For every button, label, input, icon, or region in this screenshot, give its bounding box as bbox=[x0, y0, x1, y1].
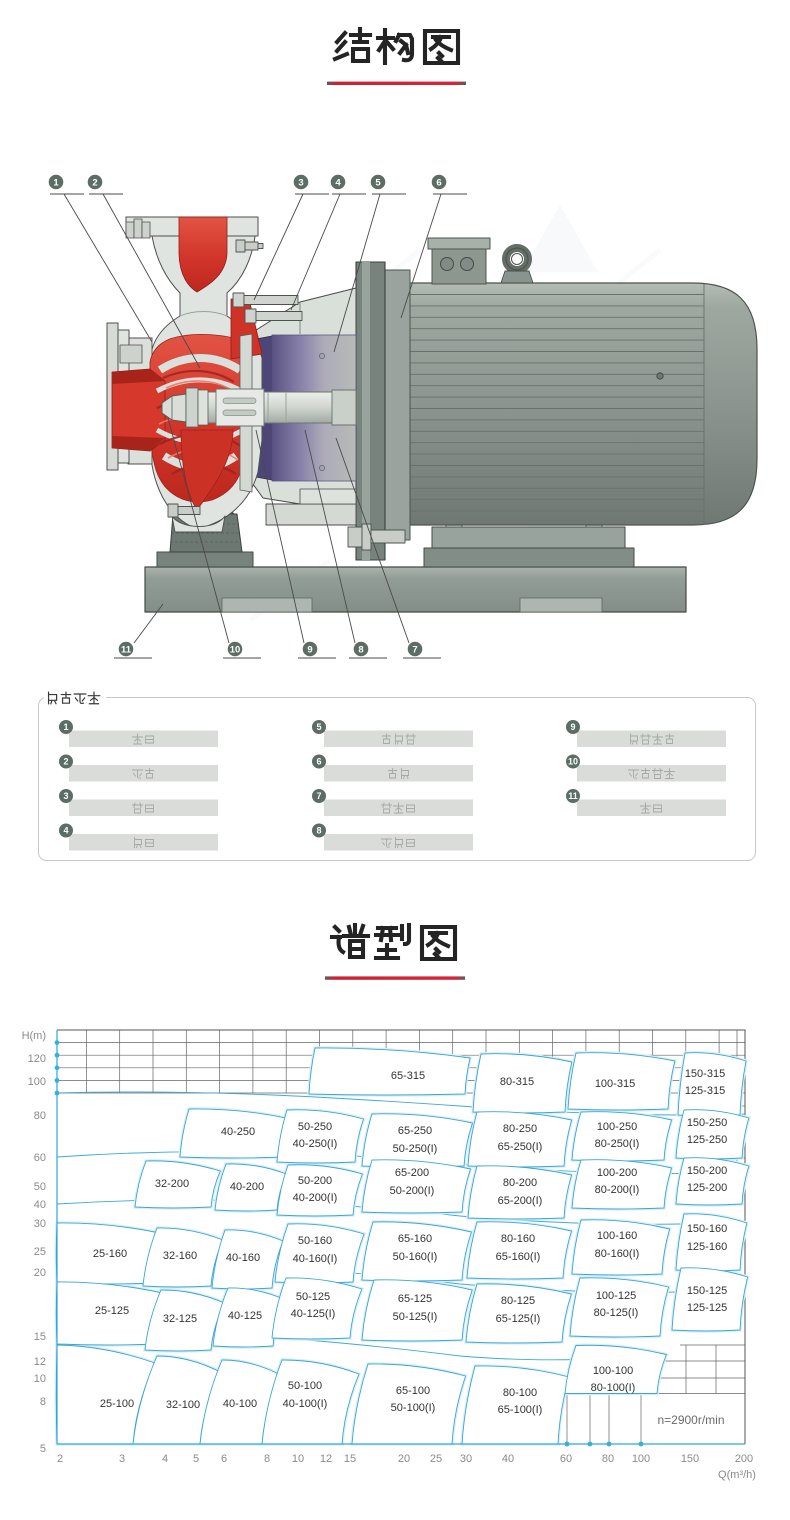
svg-text:150-315: 150-315 bbox=[685, 1068, 725, 1080]
svg-text:125-315: 125-315 bbox=[685, 1085, 725, 1097]
svg-text:80-125(I): 80-125(I) bbox=[594, 1307, 639, 1319]
svg-text:125-250: 125-250 bbox=[687, 1134, 727, 1146]
svg-text:65-200(I): 65-200(I) bbox=[498, 1195, 543, 1207]
svg-text:80-125: 80-125 bbox=[501, 1295, 535, 1307]
svg-text:40: 40 bbox=[502, 1453, 514, 1465]
svg-text:40-125(I): 40-125(I) bbox=[291, 1308, 336, 1320]
svg-text:8: 8 bbox=[316, 826, 321, 836]
svg-text:12: 12 bbox=[34, 1356, 46, 1368]
svg-text:7: 7 bbox=[316, 791, 321, 801]
svg-text:8: 8 bbox=[264, 1453, 270, 1465]
svg-text:60: 60 bbox=[34, 1152, 46, 1164]
svg-text:2: 2 bbox=[57, 1453, 63, 1465]
svg-text:40-125: 40-125 bbox=[228, 1310, 262, 1322]
svg-text:65-125(I): 65-125(I) bbox=[496, 1313, 541, 1325]
svg-text:3: 3 bbox=[298, 177, 303, 188]
svg-text:80-250: 80-250 bbox=[503, 1123, 537, 1135]
svg-text:5: 5 bbox=[316, 722, 321, 732]
svg-text:100-100: 100-100 bbox=[593, 1365, 633, 1377]
svg-text:40-250(I): 40-250(I) bbox=[293, 1138, 338, 1150]
svg-text:150-200: 150-200 bbox=[687, 1165, 727, 1177]
svg-text:6: 6 bbox=[221, 1453, 227, 1465]
svg-text:100-315: 100-315 bbox=[595, 1078, 635, 1090]
svg-text:25: 25 bbox=[34, 1246, 46, 1258]
svg-text:65-160(I): 65-160(I) bbox=[496, 1251, 541, 1263]
svg-text:200: 200 bbox=[735, 1453, 753, 1465]
svg-text:65-200: 65-200 bbox=[395, 1167, 429, 1179]
svg-text:50-160: 50-160 bbox=[298, 1235, 332, 1247]
svg-text:65-315: 65-315 bbox=[391, 1070, 425, 1082]
svg-text:40-160: 40-160 bbox=[226, 1252, 260, 1264]
svg-text:80-100(I): 80-100(I) bbox=[591, 1382, 636, 1394]
svg-text:50-125: 50-125 bbox=[296, 1291, 330, 1303]
svg-text:50: 50 bbox=[34, 1181, 46, 1193]
svg-text:50-100(I): 50-100(I) bbox=[391, 1402, 436, 1414]
svg-text:65-100: 65-100 bbox=[396, 1385, 430, 1397]
svg-text:50-250(I): 50-250(I) bbox=[393, 1143, 438, 1155]
svg-text:n=2900r/min: n=2900r/min bbox=[657, 1413, 724, 1427]
svg-text:9: 9 bbox=[307, 644, 312, 655]
svg-text:80-160: 80-160 bbox=[501, 1233, 535, 1245]
svg-text:80-200: 80-200 bbox=[503, 1177, 537, 1189]
svg-text:6: 6 bbox=[436, 177, 441, 188]
svg-text:4: 4 bbox=[162, 1453, 168, 1465]
svg-text:1: 1 bbox=[63, 722, 68, 732]
svg-text:50-250: 50-250 bbox=[298, 1121, 332, 1133]
svg-text:125-160: 125-160 bbox=[687, 1241, 727, 1253]
svg-text:65-100(I): 65-100(I) bbox=[498, 1404, 543, 1416]
svg-text:25-160: 25-160 bbox=[93, 1248, 127, 1260]
svg-text:65-160: 65-160 bbox=[398, 1233, 432, 1245]
svg-text:10: 10 bbox=[292, 1453, 304, 1465]
svg-text:8: 8 bbox=[358, 644, 363, 655]
svg-text:40-200(I): 40-200(I) bbox=[293, 1192, 338, 1204]
svg-text:32-160: 32-160 bbox=[163, 1250, 197, 1262]
svg-text:3: 3 bbox=[63, 791, 68, 801]
svg-text:15: 15 bbox=[344, 1453, 356, 1465]
svg-text:20: 20 bbox=[398, 1453, 410, 1465]
svg-text:60: 60 bbox=[560, 1453, 572, 1465]
svg-text:5: 5 bbox=[375, 177, 381, 188]
svg-text:9: 9 bbox=[570, 722, 575, 732]
svg-text:3: 3 bbox=[119, 1453, 125, 1465]
svg-text:80-315: 80-315 bbox=[500, 1076, 534, 1088]
svg-text:120: 120 bbox=[28, 1053, 46, 1065]
svg-text:10: 10 bbox=[34, 1373, 46, 1385]
svg-text:80-200(I): 80-200(I) bbox=[595, 1184, 640, 1196]
svg-text:30: 30 bbox=[34, 1218, 46, 1230]
svg-text:50-200(I): 50-200(I) bbox=[390, 1185, 435, 1197]
svg-text:100-200: 100-200 bbox=[597, 1167, 637, 1179]
svg-text:100-160: 100-160 bbox=[597, 1230, 637, 1242]
svg-text:25-125: 25-125 bbox=[95, 1305, 129, 1317]
svg-text:1: 1 bbox=[53, 177, 59, 188]
svg-text:2: 2 bbox=[63, 757, 68, 767]
svg-text:80-250(I): 80-250(I) bbox=[595, 1138, 640, 1150]
svg-text:50-100: 50-100 bbox=[288, 1380, 322, 1392]
svg-text:80: 80 bbox=[602, 1453, 614, 1465]
svg-text:Q(m³/h): Q(m³/h) bbox=[718, 1469, 756, 1481]
svg-text:40-100(I): 40-100(I) bbox=[283, 1398, 328, 1410]
svg-text:50-125(I): 50-125(I) bbox=[393, 1311, 438, 1323]
svg-text:4: 4 bbox=[335, 177, 341, 188]
svg-text:100-250: 100-250 bbox=[597, 1121, 637, 1133]
svg-text:8: 8 bbox=[40, 1396, 46, 1408]
svg-text:30: 30 bbox=[460, 1453, 472, 1465]
svg-text:H(m): H(m) bbox=[22, 1030, 46, 1042]
svg-text:15: 15 bbox=[34, 1331, 46, 1343]
svg-text:10: 10 bbox=[568, 757, 578, 767]
svg-text:65-125: 65-125 bbox=[398, 1293, 432, 1305]
svg-text:32-200: 32-200 bbox=[155, 1178, 189, 1190]
svg-text:11: 11 bbox=[568, 791, 578, 801]
svg-text:5: 5 bbox=[193, 1453, 199, 1465]
svg-text:40-200: 40-200 bbox=[230, 1181, 264, 1193]
svg-text:150-250: 150-250 bbox=[687, 1117, 727, 1129]
svg-text:32-100: 32-100 bbox=[166, 1399, 200, 1411]
svg-text:6: 6 bbox=[316, 757, 321, 767]
svg-text:7: 7 bbox=[412, 644, 417, 655]
svg-text:11: 11 bbox=[121, 644, 132, 655]
svg-text:65-250: 65-250 bbox=[398, 1125, 432, 1137]
svg-text:100: 100 bbox=[28, 1076, 46, 1088]
svg-text:80: 80 bbox=[34, 1110, 46, 1122]
svg-text:20: 20 bbox=[34, 1267, 46, 1279]
svg-text:32-125: 32-125 bbox=[163, 1313, 197, 1325]
svg-text:40-250: 40-250 bbox=[221, 1126, 255, 1138]
svg-text:5: 5 bbox=[40, 1443, 46, 1455]
svg-text:50-200: 50-200 bbox=[298, 1175, 332, 1187]
svg-text:10: 10 bbox=[230, 644, 241, 655]
svg-text:4: 4 bbox=[63, 826, 68, 836]
svg-text:40-100: 40-100 bbox=[223, 1398, 257, 1410]
svg-text:80-160(I): 80-160(I) bbox=[595, 1248, 640, 1260]
svg-text:25-100: 25-100 bbox=[100, 1398, 134, 1410]
svg-text:80-100: 80-100 bbox=[503, 1387, 537, 1399]
svg-text:150-125: 150-125 bbox=[687, 1285, 727, 1297]
svg-text:50-160(I): 50-160(I) bbox=[393, 1251, 438, 1263]
svg-text:125-125: 125-125 bbox=[687, 1302, 727, 1314]
svg-text:100: 100 bbox=[632, 1453, 650, 1465]
svg-text:25: 25 bbox=[430, 1453, 442, 1465]
svg-text:150-160: 150-160 bbox=[687, 1223, 727, 1235]
svg-text:40: 40 bbox=[34, 1199, 46, 1211]
svg-text:100-125: 100-125 bbox=[596, 1290, 636, 1302]
svg-text:125-200: 125-200 bbox=[687, 1182, 727, 1194]
svg-text:65-250(I): 65-250(I) bbox=[498, 1141, 543, 1153]
svg-text:150: 150 bbox=[681, 1453, 699, 1465]
svg-text:12: 12 bbox=[320, 1453, 332, 1465]
svg-text:40-160(I): 40-160(I) bbox=[293, 1253, 338, 1265]
svg-text:2: 2 bbox=[92, 177, 97, 188]
